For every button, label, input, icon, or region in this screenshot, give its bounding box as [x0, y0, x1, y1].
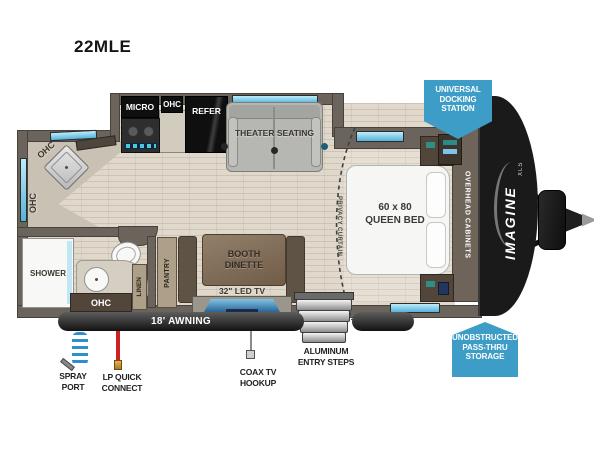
microwave-label: MICRO [126, 102, 154, 112]
brand-series: XLS [518, 156, 524, 176]
privacy-curtain-label: PRIVACY CURTAIN [330, 196, 342, 268]
spray-port-label: SPRAY PORT [48, 371, 98, 392]
entry-steps-label-line2: ENTRY STEPS [294, 357, 358, 368]
kitchen-ohc: OHC [161, 96, 183, 113]
lp-quick-connect-line-icon [116, 331, 120, 362]
kitchen-counter-mid [159, 110, 187, 153]
spray-port-hose-icon [72, 332, 88, 366]
sink-drain [95, 278, 98, 281]
dinette-bench-left [178, 236, 197, 303]
awning-label: 18' AWNING [151, 316, 211, 327]
lp-quick-connect-label-line1: LP QUICK [94, 372, 150, 383]
storage-badge-line3: STORAGE [452, 352, 518, 362]
pass-thru-storage-badge: UNOBSTRUCTED PASS-THRU STORAGE [452, 322, 518, 377]
shower-label: SHOWER [23, 267, 73, 279]
pantry-label: PANTRY [164, 258, 171, 288]
wall-bath-top [17, 227, 127, 237]
window-left-wall [20, 158, 27, 222]
step-tread [302, 332, 346, 343]
docking-badge-line3: STATION [424, 104, 492, 114]
cupholder-icon [271, 147, 278, 154]
lp-quick-connect-tip-icon [114, 360, 122, 370]
stove-knob-strip [125, 143, 157, 149]
nightstand-item [438, 282, 449, 295]
bath-ohc-label: OHC [91, 298, 111, 308]
dinette-label: BOOTH DINETTE [203, 235, 285, 285]
linen-label: LINEN [136, 277, 143, 297]
theater-armrest-left [228, 117, 238, 167]
wall-bath-right [147, 236, 156, 308]
stove [121, 118, 160, 153]
theater-label: THEATER SEATING [227, 127, 322, 139]
cupholder-icon [221, 143, 228, 150]
docking-item [443, 149, 457, 154]
overhead-cabinets-label: OVERHEAD CABINETS [464, 171, 471, 259]
coax-label: COAX TV HOOKUP [229, 367, 287, 388]
entry-steps-label: ALUMINUM ENTRY STEPS [294, 346, 358, 367]
awning-bar-front [352, 312, 414, 331]
spray-port-label-line2: PORT [48, 382, 98, 393]
page-title: 22MLE [74, 37, 131, 57]
pantry-cabinet: PANTRY [157, 237, 177, 308]
docking-badge-line1: UNIVERSAL [424, 85, 492, 95]
bed-label-line2: QUEEN BED [365, 214, 424, 227]
storage-badge-line1: UNOBSTRUCTED [452, 333, 518, 343]
vanity-sink-icon [84, 267, 109, 292]
docking-badge-line2: DOCKING [424, 95, 492, 105]
floorplan-image: 22MLE OHC OHC MICRO OHC REFER [0, 0, 614, 460]
nightstand-item [426, 142, 435, 148]
refrigerator-label: REFER [186, 105, 227, 117]
theater-armrest-right [311, 117, 321, 167]
storage-badge-line2: PASS-THRU [452, 343, 518, 353]
shower: SHOWER [22, 238, 74, 308]
lp-quick-connect-label: LP QUICK CONNECT [94, 372, 150, 393]
nightstand-item [426, 281, 435, 287]
linen-cabinet: LINEN [132, 264, 147, 310]
dinette-table: BOOTH DINETTE [202, 234, 286, 286]
left-ohc-label: OHC [27, 184, 39, 222]
spray-port-label-line1: SPRAY [48, 371, 98, 382]
awning-bar: 18' AWNING [58, 312, 304, 331]
theater-seating: THEATER SEATING [226, 102, 323, 172]
kitchen-ohc-label: OHC [163, 100, 181, 109]
bath-ohc: OHC [70, 293, 132, 312]
bed-label-line1: 60 x 80 [378, 201, 411, 214]
entry-steps-label-line1: ALUMINUM [294, 346, 358, 357]
coax-tip-icon [246, 350, 255, 359]
brand-logo: IMAGINE [502, 150, 518, 260]
dinette-label-line2: DINETTE [225, 260, 264, 271]
nightstand-bottom [420, 274, 454, 302]
coax-label-line1: COAX TV [229, 367, 287, 378]
lp-quick-connect-label-line2: CONNECT [94, 383, 150, 394]
tv-label: 32" LED TV [198, 286, 286, 296]
microwave: MICRO [121, 96, 159, 118]
coax-label-line2: HOOKUP [229, 378, 287, 389]
coax-line-icon [250, 331, 252, 352]
front-cap: IMAGINE XLS [478, 96, 538, 316]
propane-cover [538, 190, 566, 250]
docking-item [443, 140, 457, 145]
dinette-label-line1: BOOTH [228, 249, 261, 260]
